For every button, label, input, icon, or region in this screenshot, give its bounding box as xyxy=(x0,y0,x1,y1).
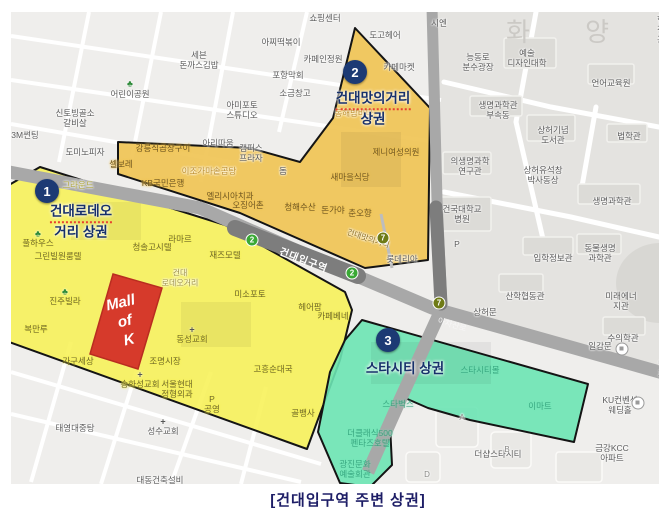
zone1-name-line2: 거리 상권 xyxy=(50,224,112,242)
district-watermark: 화 양 동 xyxy=(506,12,659,49)
tree-icon: ♣ xyxy=(62,288,68,297)
subway-line2-bullet: 2 xyxy=(246,234,259,247)
zone3-name-line1: 스타시티 상권 xyxy=(366,360,444,378)
subway-line7-bullet: 7 xyxy=(433,297,446,310)
zone3-badge: 3 xyxy=(376,328,400,352)
map-caption: [건대입구역 주변 상권] xyxy=(0,489,670,510)
zone-label-food-street: 건대맛의거리 상권 xyxy=(336,89,411,128)
subway-line2-bullet: 2 xyxy=(346,267,359,280)
zone-label-star-city: 스타시티 상권 xyxy=(366,360,444,378)
zone2-name-line2: 상권 xyxy=(336,111,411,129)
map-canvas: 화 양 동 쇼핑센터 아찌떡볶이 세븐 돈까스김밥 카페인정원 포항막회 도고헤… xyxy=(11,12,659,484)
screenshot-root: 화 양 동 쇼핑센터 아찌떡볶이 세븐 돈까스김밥 카페인정원 포항막회 도고헤… xyxy=(0,0,670,524)
church-cross-icon: + xyxy=(137,371,142,380)
zone1-badge: 1 xyxy=(35,179,59,203)
zone2-name-line1: 건대맛의거리 xyxy=(336,89,411,110)
zone-label-rodeo: 건대로데오 거리 상권 xyxy=(50,202,112,241)
zone1-name-line1: 건대로데오 xyxy=(50,202,112,223)
bus-stop-icon xyxy=(632,397,645,410)
church-cross-icon: + xyxy=(189,326,194,335)
church-cross-icon: + xyxy=(160,418,165,427)
subway-line7-bullet: 7 xyxy=(377,232,390,245)
map-base-layer xyxy=(11,12,659,484)
tree-icon: ♣ xyxy=(35,230,41,239)
tree-icon: ♣ xyxy=(127,80,133,89)
bus-stop-icon xyxy=(616,343,629,356)
zone2-badge: 2 xyxy=(343,60,367,84)
